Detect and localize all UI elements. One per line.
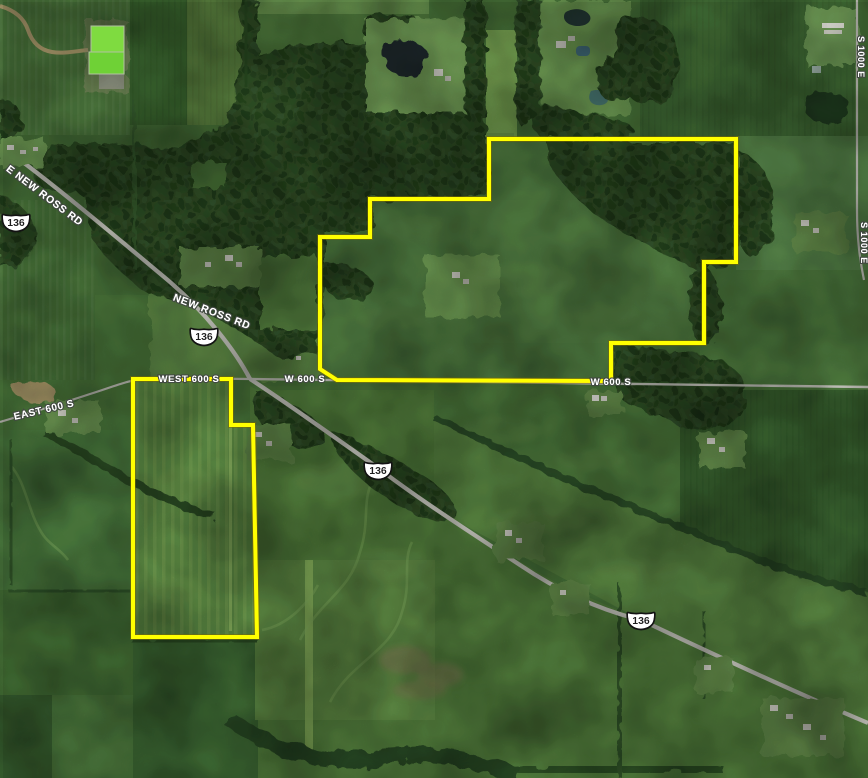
- svg-text:W 600 S: W 600 S: [285, 374, 326, 385]
- svg-text:136: 136: [632, 615, 650, 627]
- svg-text:S 1000 E: S 1000 E: [856, 36, 866, 78]
- svg-text:136: 136: [369, 465, 387, 477]
- svg-text:136: 136: [195, 331, 213, 343]
- svg-text:136: 136: [7, 217, 25, 229]
- svg-text:WEST 600 S: WEST 600 S: [159, 374, 220, 385]
- svg-text:S 1000 E: S 1000 E: [859, 222, 868, 264]
- svg-text:W 600 S: W 600 S: [591, 377, 632, 388]
